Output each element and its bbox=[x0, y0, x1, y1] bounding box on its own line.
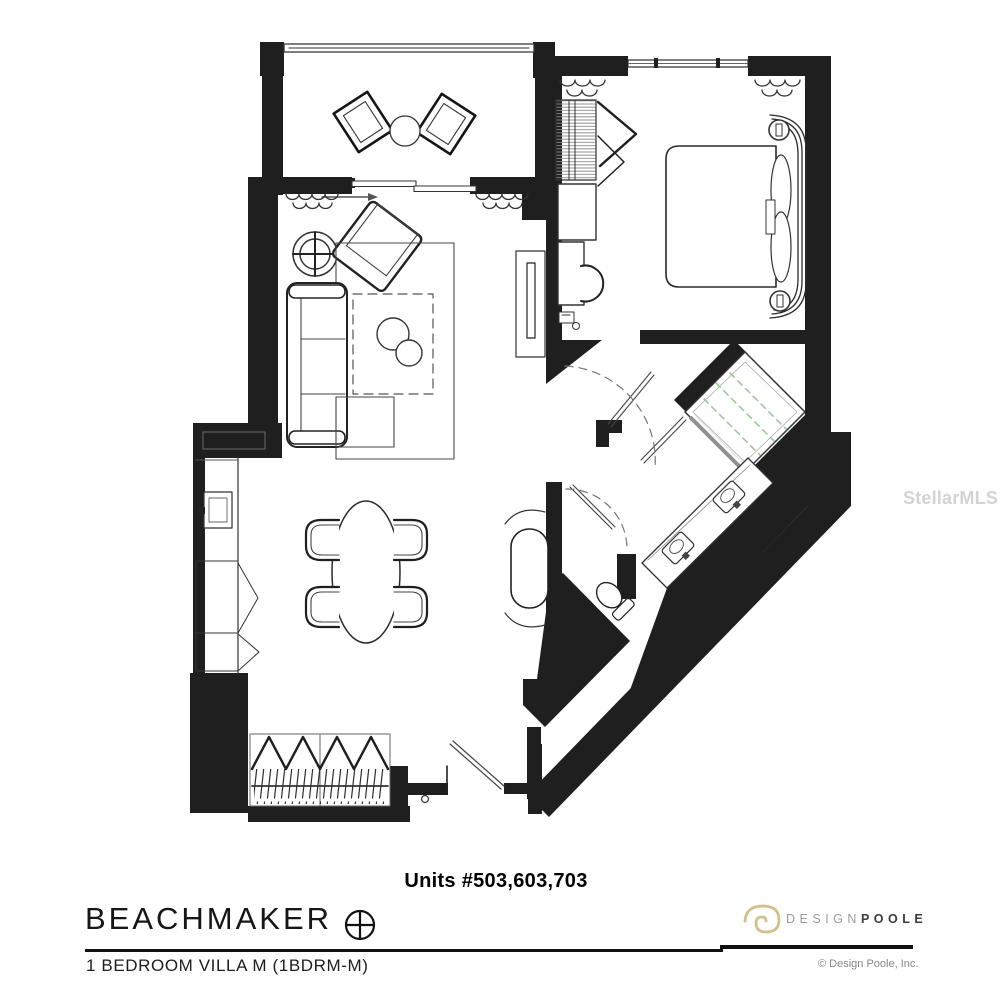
bedroom-closet bbox=[556, 100, 636, 186]
closet-back-wall bbox=[190, 673, 248, 813]
unit-type-label: 1 BEDROOM VILLA M (1BDRM-M) bbox=[86, 956, 369, 976]
door-leaves bbox=[570, 372, 686, 529]
brand-design: DESIGN bbox=[786, 912, 861, 926]
balcony-chair bbox=[417, 94, 476, 154]
sliding-door-panel bbox=[414, 186, 476, 192]
dining-area bbox=[306, 501, 548, 643]
balcony-table bbox=[390, 116, 420, 146]
door-knob bbox=[422, 796, 429, 803]
sofa bbox=[287, 283, 347, 447]
desk-chair bbox=[581, 266, 603, 302]
bedroom-right-wall bbox=[805, 56, 831, 432]
coffee-table bbox=[396, 340, 422, 366]
balcony-left-wall bbox=[262, 42, 283, 195]
dining-chair bbox=[306, 520, 339, 560]
ceiling-fan-icon bbox=[293, 232, 337, 276]
title-divider-line bbox=[85, 949, 723, 952]
tv bbox=[527, 263, 535, 338]
north-compass-icon bbox=[346, 911, 374, 939]
bifold-door bbox=[598, 136, 624, 186]
designpoole-spiral-icon bbox=[745, 906, 779, 932]
hangers bbox=[254, 766, 386, 804]
logo-divider-line bbox=[720, 945, 913, 949]
dresser bbox=[558, 184, 596, 240]
designpoole-logo: DESIGNPOOLE bbox=[786, 912, 927, 926]
corner-wedge bbox=[546, 340, 602, 384]
bedroom bbox=[556, 58, 806, 330]
entry-closet bbox=[250, 734, 390, 806]
dining-chair bbox=[306, 587, 339, 627]
armchair bbox=[331, 200, 423, 293]
bed bbox=[666, 115, 806, 318]
bifold-door bbox=[598, 102, 636, 166]
cabinet-door-swing bbox=[238, 563, 258, 633]
brand-poole: POOLE bbox=[861, 912, 927, 926]
dining-chair bbox=[394, 587, 427, 627]
living-left-wall bbox=[248, 177, 278, 423]
balcony-chair bbox=[334, 92, 393, 152]
dining-table bbox=[332, 501, 400, 643]
living-room bbox=[287, 200, 545, 459]
cabinet-door-swing bbox=[238, 634, 259, 671]
coffee-maker-icon bbox=[559, 312, 580, 330]
floorplan-page: StellarMLS Units #503,603,703 BEACHMAKER… bbox=[0, 0, 1000, 1000]
project-name: BEACHMAKER bbox=[85, 901, 332, 937]
kitchenette bbox=[196, 458, 259, 673]
floor-plan bbox=[0, 0, 1000, 1000]
copyright: © Design Poole, Inc. bbox=[818, 958, 918, 970]
dining-chair bbox=[394, 520, 427, 560]
door-direction-arrow bbox=[368, 193, 378, 201]
watermark: StellarMLS bbox=[903, 488, 998, 509]
desk bbox=[558, 242, 584, 305]
units-label: Units #503,603,703 bbox=[391, 870, 601, 893]
sliding-door-panel bbox=[352, 181, 416, 187]
hall-bench bbox=[505, 510, 548, 627]
bedroom-bottom-wall bbox=[640, 330, 805, 344]
